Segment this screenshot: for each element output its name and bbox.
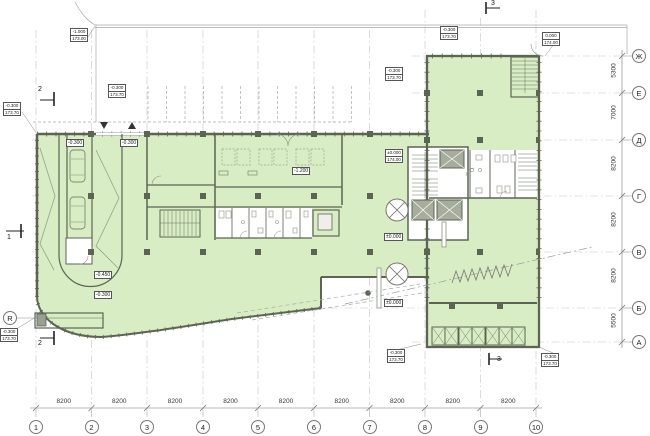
elevation-marker-4: -0.300 173.70 <box>385 67 403 81</box>
section-label-1: 1 <box>7 234 11 241</box>
elevation-marker-1: -1.000 173.00 <box>70 28 88 42</box>
axis-right-b: Б <box>632 301 646 315</box>
floor-plan-canvas: 1 2 3 4 5 6 7 8 9 10 Ж Е Д Г В Б А R 820… <box>0 0 650 436</box>
elevation-marker-7: ±0.000 174.00 <box>385 149 403 163</box>
dim-bottom-2: 8200 <box>104 398 134 405</box>
elevation-marker-7-abs: 174.00 <box>386 157 402 163</box>
elevation-marker-2: -0.300 173.70 <box>108 84 126 98</box>
axis-bottom-4: 4 <box>196 420 210 434</box>
elevation-marker-4-abs: 173.70 <box>386 75 402 81</box>
elevation-marker-4-value: -0.300 <box>386 68 402 75</box>
dim-bottom-1: 8200 <box>49 398 79 405</box>
elevation-marker-5-abs: 173.70 <box>441 34 457 40</box>
elevation-marker-1-abs: 173.00 <box>71 36 87 42</box>
elevation-marker-7-value: ±0.000 <box>386 150 402 157</box>
axis-right-e: Е <box>632 86 646 100</box>
elevation-marker-9-value: -0.300 <box>388 350 404 357</box>
level-ramp-low: -0.300 <box>94 291 112 299</box>
dim-right-6: 5500 <box>611 301 618 341</box>
axis-bottom-6: 6 <box>307 420 321 434</box>
section-label-3-top: 3 <box>491 0 495 7</box>
dim-bottom-7: 8200 <box>382 398 412 405</box>
elevation-marker-3-value: -0.300 <box>4 103 20 110</box>
dim-bottom-4: 8200 <box>216 398 246 405</box>
elevation-marker-3: -0.300 173.70 <box>3 102 21 116</box>
axis-bottom-10: 10 <box>529 420 543 434</box>
dim-right-2: 7000 <box>611 92 618 132</box>
elevation-marker-6-value: 0.000 <box>543 33 559 40</box>
axis-right-a: А <box>632 335 646 349</box>
elevation-marker-9: -0.300 173.70 <box>387 349 405 363</box>
elevation-marker-8: -0.300 173.70 <box>0 328 18 342</box>
dim-right-4: 8200 <box>611 200 618 240</box>
level-zero-south: ±0.000 <box>384 299 403 307</box>
section-label-3-bottom: 3 <box>497 356 501 363</box>
axis-bottom-1: 1 <box>29 420 43 434</box>
dim-bottom-3: 8200 <box>160 398 190 405</box>
elevation-marker-9-abs: 173.70 <box>388 357 404 363</box>
elevation-marker-8-abs: 173.70 <box>1 336 17 342</box>
dim-bottom-6: 8200 <box>327 398 357 405</box>
elevation-marker-8-value: -0.300 <box>1 329 17 336</box>
elevation-marker-10-abs: 173.70 <box>542 361 558 367</box>
axis-bottom-9: 9 <box>474 420 488 434</box>
ramp-direction-arrows <box>100 122 136 129</box>
elevation-marker-5: -0.300 173.70 <box>440 26 458 40</box>
level-ramp-top-left: -0.300 <box>66 139 84 147</box>
axis-bottom-5: 5 <box>251 420 265 434</box>
elevation-marker-5-value: -0.300 <box>441 27 457 34</box>
dim-bottom-5: 8200 <box>271 398 301 405</box>
elevation-marker-10: -0.300 173.70 <box>541 353 559 367</box>
elevation-marker-2-abs: 173.70 <box>109 92 125 98</box>
elevation-marker-2-value: -0.300 <box>109 85 125 92</box>
axis-right-v: В <box>632 245 646 259</box>
level-zero-main: ±0.000 <box>384 233 403 241</box>
dim-right-1: 5300 <box>611 50 618 90</box>
plan-geometry <box>0 0 650 436</box>
dim-right-3: 8200 <box>611 144 618 184</box>
elevation-marker-10-value: -0.300 <box>542 354 558 361</box>
axis-bottom-3: 3 <box>140 420 154 434</box>
elevation-marker-3-abs: 173.70 <box>4 110 20 116</box>
elevation-marker-6: 0.000 174.00 <box>542 32 560 46</box>
axis-right-g: Г <box>632 189 646 203</box>
level-mid-room: -1.200 <box>292 167 310 175</box>
axis-left-r: R <box>3 311 17 325</box>
elevation-marker-1-value: -1.000 <box>71 29 87 36</box>
section-label-2-bottom: 2 <box>38 340 42 347</box>
axis-right-d: Д <box>632 133 646 147</box>
level-ramp-top-right: -0.300 <box>120 139 138 147</box>
axis-right-zh: Ж <box>632 49 646 63</box>
axis-bottom-8: 8 <box>418 420 432 434</box>
dim-right-5: 8200 <box>611 256 618 296</box>
dim-bottom-9: 8200 <box>493 398 523 405</box>
elevation-marker-6-abs: 174.00 <box>543 40 559 46</box>
axis-bottom-7: 7 <box>363 420 377 434</box>
section-label-2-top: 2 <box>38 86 42 93</box>
axis-bottom-2: 2 <box>85 420 99 434</box>
level-ramp-mid: -0.450 <box>94 271 112 279</box>
dim-bottom-8: 8200 <box>438 398 468 405</box>
